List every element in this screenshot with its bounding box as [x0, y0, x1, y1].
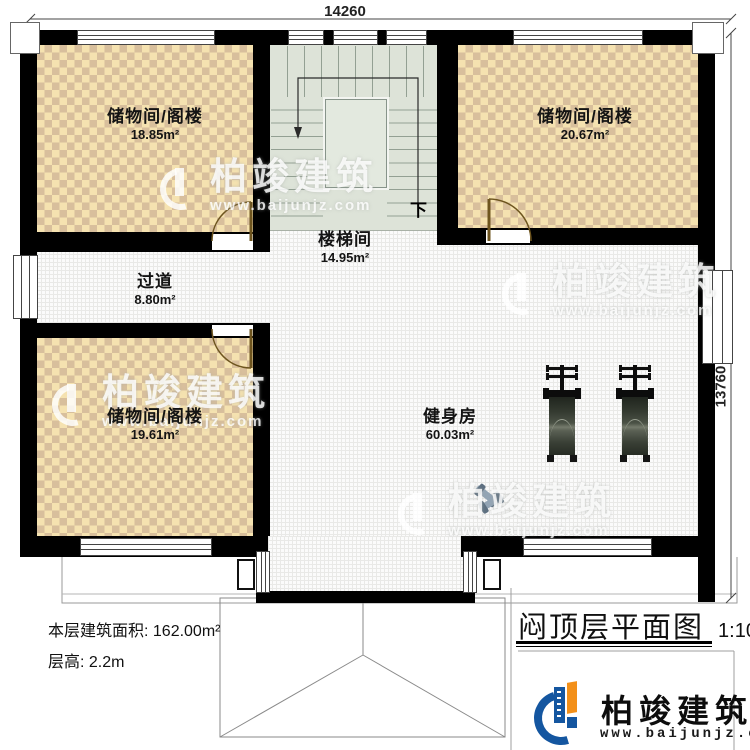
plan-title-row: 闷顶层平面图1:100: [518, 604, 750, 646]
corner-box-top-left: [10, 22, 40, 54]
window-porch-right: [463, 551, 477, 593]
exercise-machine-icon: [546, 365, 578, 462]
window-top-stair-1: [288, 30, 324, 45]
watermark-logo-icon: [502, 267, 542, 317]
watermark-logo-icon: [398, 487, 438, 537]
plan-scale: 1:100: [718, 620, 750, 642]
door-opening-room3: [212, 325, 253, 336]
window-bottom-1: [80, 538, 212, 556]
wall-porch-bottom: [256, 591, 475, 603]
title-underline-thin: [516, 646, 712, 647]
dimension-top: 14260: [300, 3, 390, 20]
title-underline-thick: [516, 641, 712, 644]
floor-plan-canvas: 柏竣建筑 www.baijunjz.com 柏竣建筑 www.baijunjz.…: [0, 0, 750, 750]
roof-sketch: [220, 598, 505, 737]
corner-box-top-right: [692, 22, 724, 54]
label-stairwell: 楼梯间 14.95m²: [285, 230, 405, 266]
wall-stair-room2: [437, 30, 458, 245]
note-floor-area: 本层建筑面积: 162.00m²: [48, 617, 221, 641]
label-storage-bottom-left: 储物间/阁楼 19.61m²: [75, 407, 235, 443]
wall-room2-gym: [437, 228, 715, 245]
label-hallway: 过道 8.80m²: [95, 272, 215, 308]
window-top-1: [77, 30, 215, 45]
exercise-machine-icon: [619, 365, 651, 462]
watermark-company: 柏竣建筑: [210, 156, 378, 197]
window-top-stair-2: [333, 30, 378, 45]
watermark: 柏竣建筑 www.baijunjz.com: [502, 263, 720, 321]
watermark-url: www.baijunjz.com: [210, 197, 371, 214]
dimension-right: 13760: [713, 342, 730, 432]
plan-title: 闷顶层平面图: [518, 612, 704, 644]
watermark-logo-icon: [160, 162, 200, 212]
door-opening-room2: [486, 230, 530, 243]
company-logo-icon: [534, 681, 594, 745]
door-opening-room1: [212, 234, 253, 250]
porch-column-left: [237, 559, 255, 590]
label-storage-top-right: 储物间/阁楼 20.67m²: [505, 107, 665, 143]
porch-bay-floor: [268, 536, 463, 591]
stair-treads-top: [271, 46, 439, 97]
note-floor-height: 层高: 2.2m: [48, 648, 124, 672]
label-storage-top-left: 储物间/阁楼 18.85m²: [75, 107, 235, 143]
label-gym: 健身房 60.03m²: [390, 407, 510, 443]
wall-right-corner-extension: [698, 557, 715, 602]
porch-column-right: [483, 559, 501, 590]
window-porch-left: [256, 551, 270, 593]
watermark: 柏竣建筑 www.baijunjz.com: [160, 158, 378, 216]
window-top-2: [513, 30, 643, 45]
stair-down-label: 下: [410, 196, 427, 221]
window-left-hallway: [13, 255, 38, 319]
company-website: www.baijunjz.com: [600, 726, 750, 742]
watermark: 柏竣建筑 www.baijunjz.com: [398, 483, 616, 541]
window-top-stair-3: [386, 30, 427, 45]
